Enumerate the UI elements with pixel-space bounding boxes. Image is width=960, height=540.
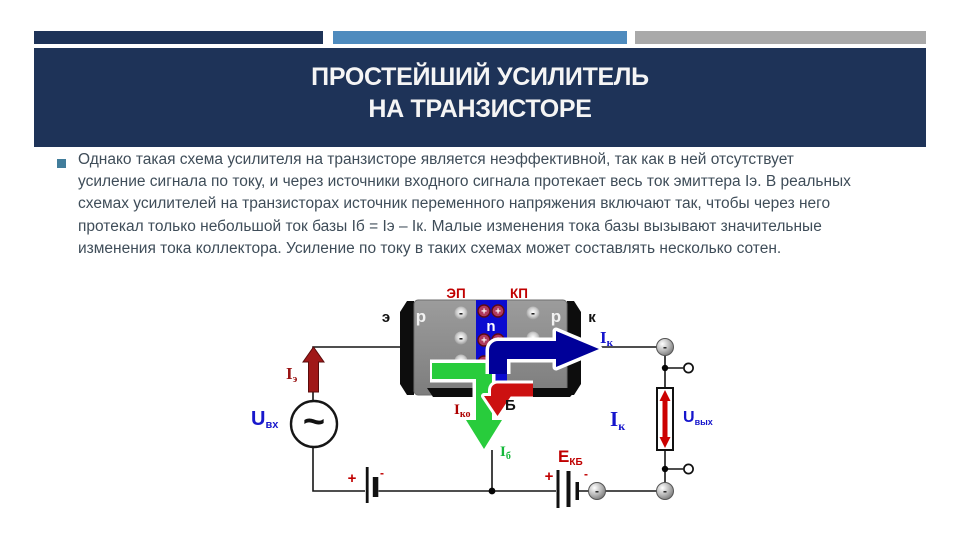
iko-label: Iко (454, 402, 470, 420)
junction-dot (662, 365, 668, 371)
ekb-main: Е (558, 447, 569, 466)
collector-wire (600, 347, 665, 388)
ik-load-main: I (610, 407, 618, 431)
ie-label: Iэ (286, 364, 298, 385)
battery-ekb: + - (545, 467, 588, 508)
ie-sub: э (293, 373, 298, 385)
p-left-label: p (416, 307, 426, 326)
plus-charge-label: + (495, 307, 501, 318)
ik-top-label: Iк (600, 328, 614, 349)
p-right-label: p (551, 307, 561, 326)
ib-label: Iб (500, 444, 511, 462)
load-resistor (657, 388, 673, 450)
electron-minus-label: - (663, 484, 667, 498)
ekb-sub: КБ (569, 457, 582, 468)
ekb-label: ЕКБ (558, 447, 583, 468)
kp-junction-label: КП (510, 286, 528, 301)
uout-label: Uвых (683, 409, 713, 427)
circuit-diagram: - - - - - + + + + p n p (0, 0, 960, 540)
plus-charge-label: + (481, 307, 487, 318)
battery-plate-long (557, 470, 560, 508)
slide: { "slide": { "title_line1": "ПРОСТЕЙШИЙ … (0, 0, 960, 540)
junction-dot (662, 466, 668, 472)
battery-plate-long (567, 471, 571, 507)
collector-terminal-label: к (588, 309, 596, 326)
ik-load-label: Iк (610, 407, 625, 433)
battery-input-bias: + - (348, 466, 384, 503)
emitter-contact-pad (400, 301, 414, 395)
ac-source: ~ (291, 401, 337, 447)
uout-main: U (683, 409, 695, 426)
plus-charge-label: + (481, 336, 487, 347)
electron-minus-label: - (595, 484, 599, 498)
base-terminal-label: Б (505, 397, 516, 414)
battery-plate-short (373, 477, 379, 497)
battery-plus-label: + (348, 470, 357, 487)
battery-minus-label: - (380, 466, 384, 480)
emitter-terminal-label: э (382, 309, 390, 326)
ik-top-sub: к (607, 337, 614, 349)
ep-junction-label: ЭП (446, 286, 465, 301)
battery-plate-short (576, 482, 580, 500)
ib-sub: б (506, 451, 511, 462)
uout-sub: вых (695, 417, 713, 427)
output-terminal (684, 363, 693, 372)
battery-minus-label: - (584, 467, 588, 481)
emitter-wire (313, 347, 401, 401)
ie-arrow (303, 347, 324, 392)
ik-load-sub: к (618, 419, 625, 433)
n-label: n (486, 318, 495, 335)
uin-main: U (251, 408, 265, 430)
base-contact-pad-left (427, 388, 477, 397)
source-bottom-wire (313, 447, 365, 491)
ac-source-symbol: ~ (303, 401, 325, 443)
minus-charge-label: - (459, 331, 463, 345)
minus-charge-label: - (531, 306, 535, 320)
minus-charge-label: - (459, 306, 463, 320)
junction-dot (489, 488, 496, 495)
battery-plus-label: + (545, 468, 554, 485)
output-terminal (684, 464, 693, 473)
iko-sub: ко (460, 409, 471, 420)
uin-label: Uвх (251, 408, 279, 431)
electron-minus-label: - (663, 340, 667, 354)
uin-sub: вх (265, 419, 279, 431)
battery-plate-long (366, 467, 369, 503)
